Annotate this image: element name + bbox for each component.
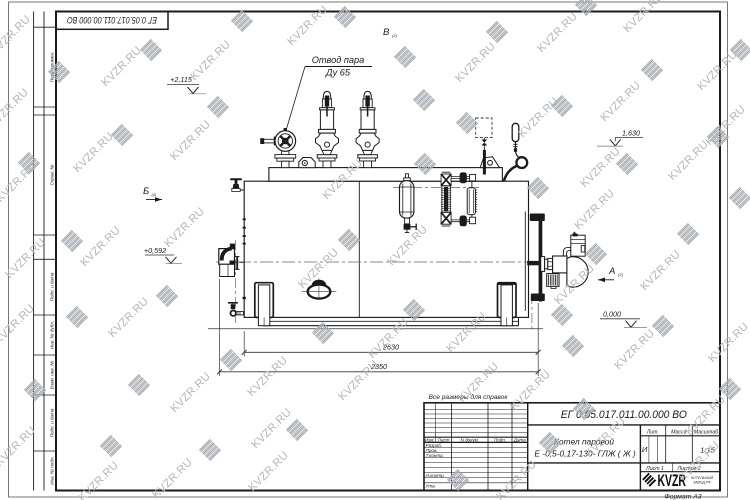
svg-text:Ду 65: Ду 65	[325, 68, 351, 78]
svg-text:Подп. и дата: Подп. и дата	[50, 408, 55, 437]
svg-text:(2): (2)	[618, 272, 624, 277]
svg-text:ЗАВОД.РФ: ЗАВОД.РФ	[693, 480, 711, 484]
svg-text:(2): (2)	[152, 192, 158, 197]
svg-text:Отвод пара: Отвод пара	[312, 55, 365, 65]
svg-text:Инв. № подл.: Инв. № подл.	[50, 456, 55, 485]
svg-text:Инв. № дубл.: Инв. № дубл.	[50, 321, 55, 349]
svg-text:Подп. и дата: Подп. и дата	[50, 272, 55, 301]
svg-text:(2): (2)	[392, 33, 398, 38]
svg-text:Подп.: Подп.	[494, 437, 506, 442]
svg-text:Справ. №: Справ. №	[50, 165, 55, 186]
svg-text:КОТЕЛЬНЫЙ: КОТЕЛЬНЫЙ	[691, 476, 714, 480]
svg-text:ЕГ 0.05.017.011.00.000 ВО: ЕГ 0.05.017.011.00.000 ВО	[67, 14, 157, 25]
svg-text:Изм.: Изм.	[425, 437, 435, 442]
svg-text:Дата: Дата	[513, 437, 527, 442]
svg-text:Б: Б	[143, 186, 149, 197]
svg-text:В: В	[383, 27, 390, 38]
svg-text:+0,592: +0,592	[144, 246, 166, 255]
svg-text:Н.контр.: Н.контр.	[426, 473, 445, 478]
svg-text:1,630: 1,630	[622, 129, 640, 138]
svg-text:Утв.: Утв.	[426, 483, 436, 488]
svg-text:Взам. инв. №: Взам. инв. №	[50, 361, 55, 389]
svg-text:А: А	[608, 266, 615, 277]
svg-text:Формат А3: Формат А3	[664, 493, 701, 500]
svg-text:N докум.: N докум.	[461, 437, 480, 442]
svg-text:Т.контр.: Т.контр.	[426, 453, 445, 458]
svg-text:Пров.: Пров.	[426, 448, 438, 453]
svg-text:0,000: 0,000	[603, 310, 621, 319]
svg-text:И: И	[642, 445, 648, 454]
svg-text:Лист: Лист	[437, 437, 450, 442]
svg-text:Лит.: Лит.	[646, 430, 659, 436]
